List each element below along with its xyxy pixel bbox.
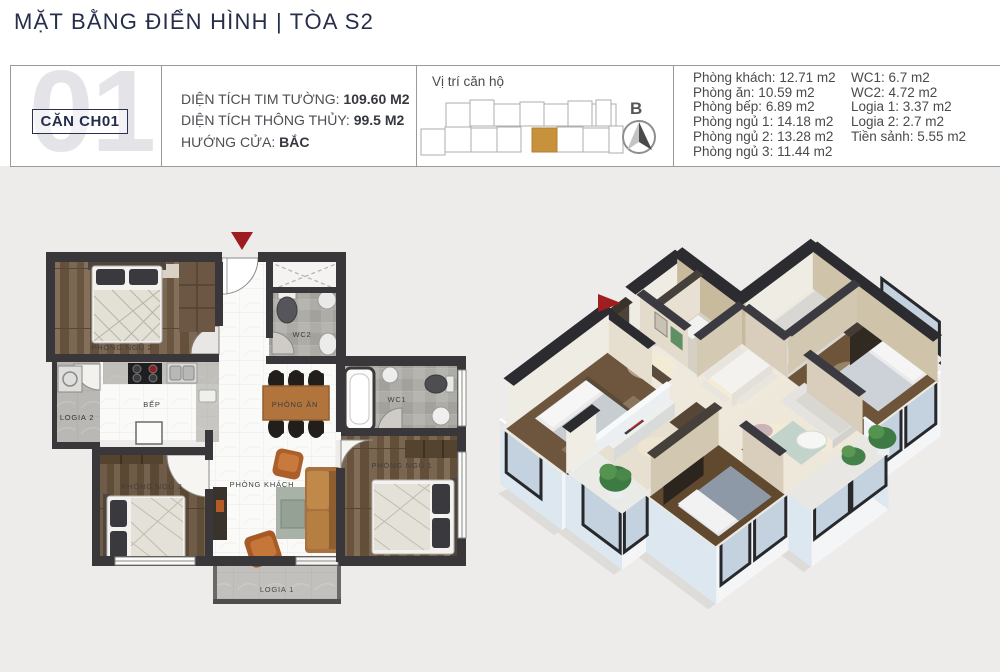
svg-text:LOGIA 1: LOGIA 1 (260, 585, 294, 594)
svg-text:PHÒNG NGỦ 3: PHÒNG NGỦ 3 (121, 482, 182, 491)
svg-text:LOGIA 2: LOGIA 2 (60, 413, 94, 422)
svg-text:BẾP: BẾP (143, 399, 160, 409)
svg-text:PHÒNG NGỦ 1: PHÒNG NGỦ 1 (371, 461, 432, 470)
svg-text:B: B (630, 99, 642, 118)
svg-text:WC1: WC1 (387, 395, 406, 404)
svg-text:PHÒNG ĂN: PHÒNG ĂN (272, 400, 318, 409)
svg-text:PHÒNG NGỦ 2: PHÒNG NGỦ 2 (91, 343, 152, 352)
svg-text:PHÒNG KHÁCH: PHÒNG KHÁCH (230, 480, 295, 489)
svg-text:WC2: WC2 (292, 330, 311, 339)
